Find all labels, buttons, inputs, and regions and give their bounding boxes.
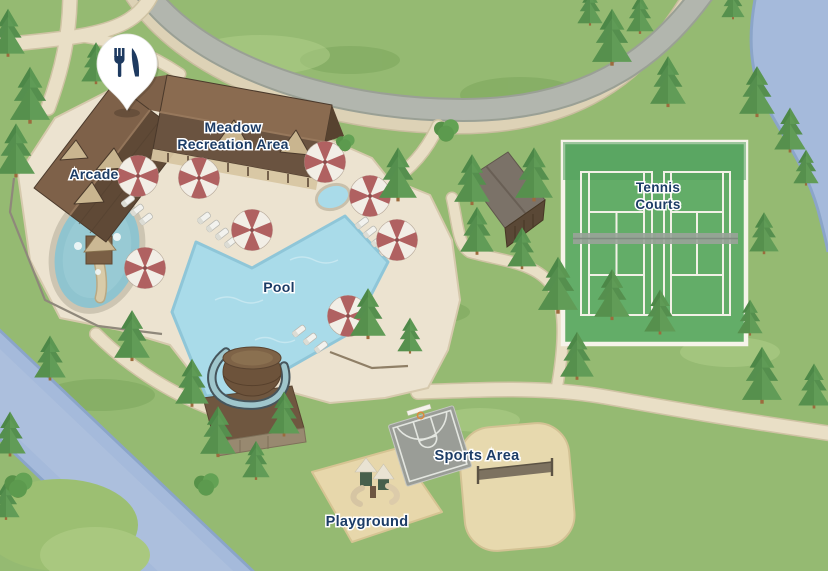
label-meadow-line1: Meadow xyxy=(204,119,261,135)
resort-map-canvas: Meadow Recreation Area Arcade Pool Tenni… xyxy=(0,0,828,571)
tennis-nets xyxy=(573,233,738,244)
label-tennis-line2: Courts xyxy=(635,197,680,212)
label-meadow-line2: Recreation Area xyxy=(177,136,288,152)
label-tennis-line1: Tennis xyxy=(636,180,680,195)
label-arcade: Arcade xyxy=(69,166,118,182)
label-playground: Playground xyxy=(326,514,409,530)
label-sports-area: Sports Area xyxy=(435,448,521,464)
volleyball-court xyxy=(457,420,577,553)
resort-map: Meadow Recreation Area Arcade Pool Tenni… xyxy=(0,0,828,571)
label-pool: Pool xyxy=(263,279,295,295)
